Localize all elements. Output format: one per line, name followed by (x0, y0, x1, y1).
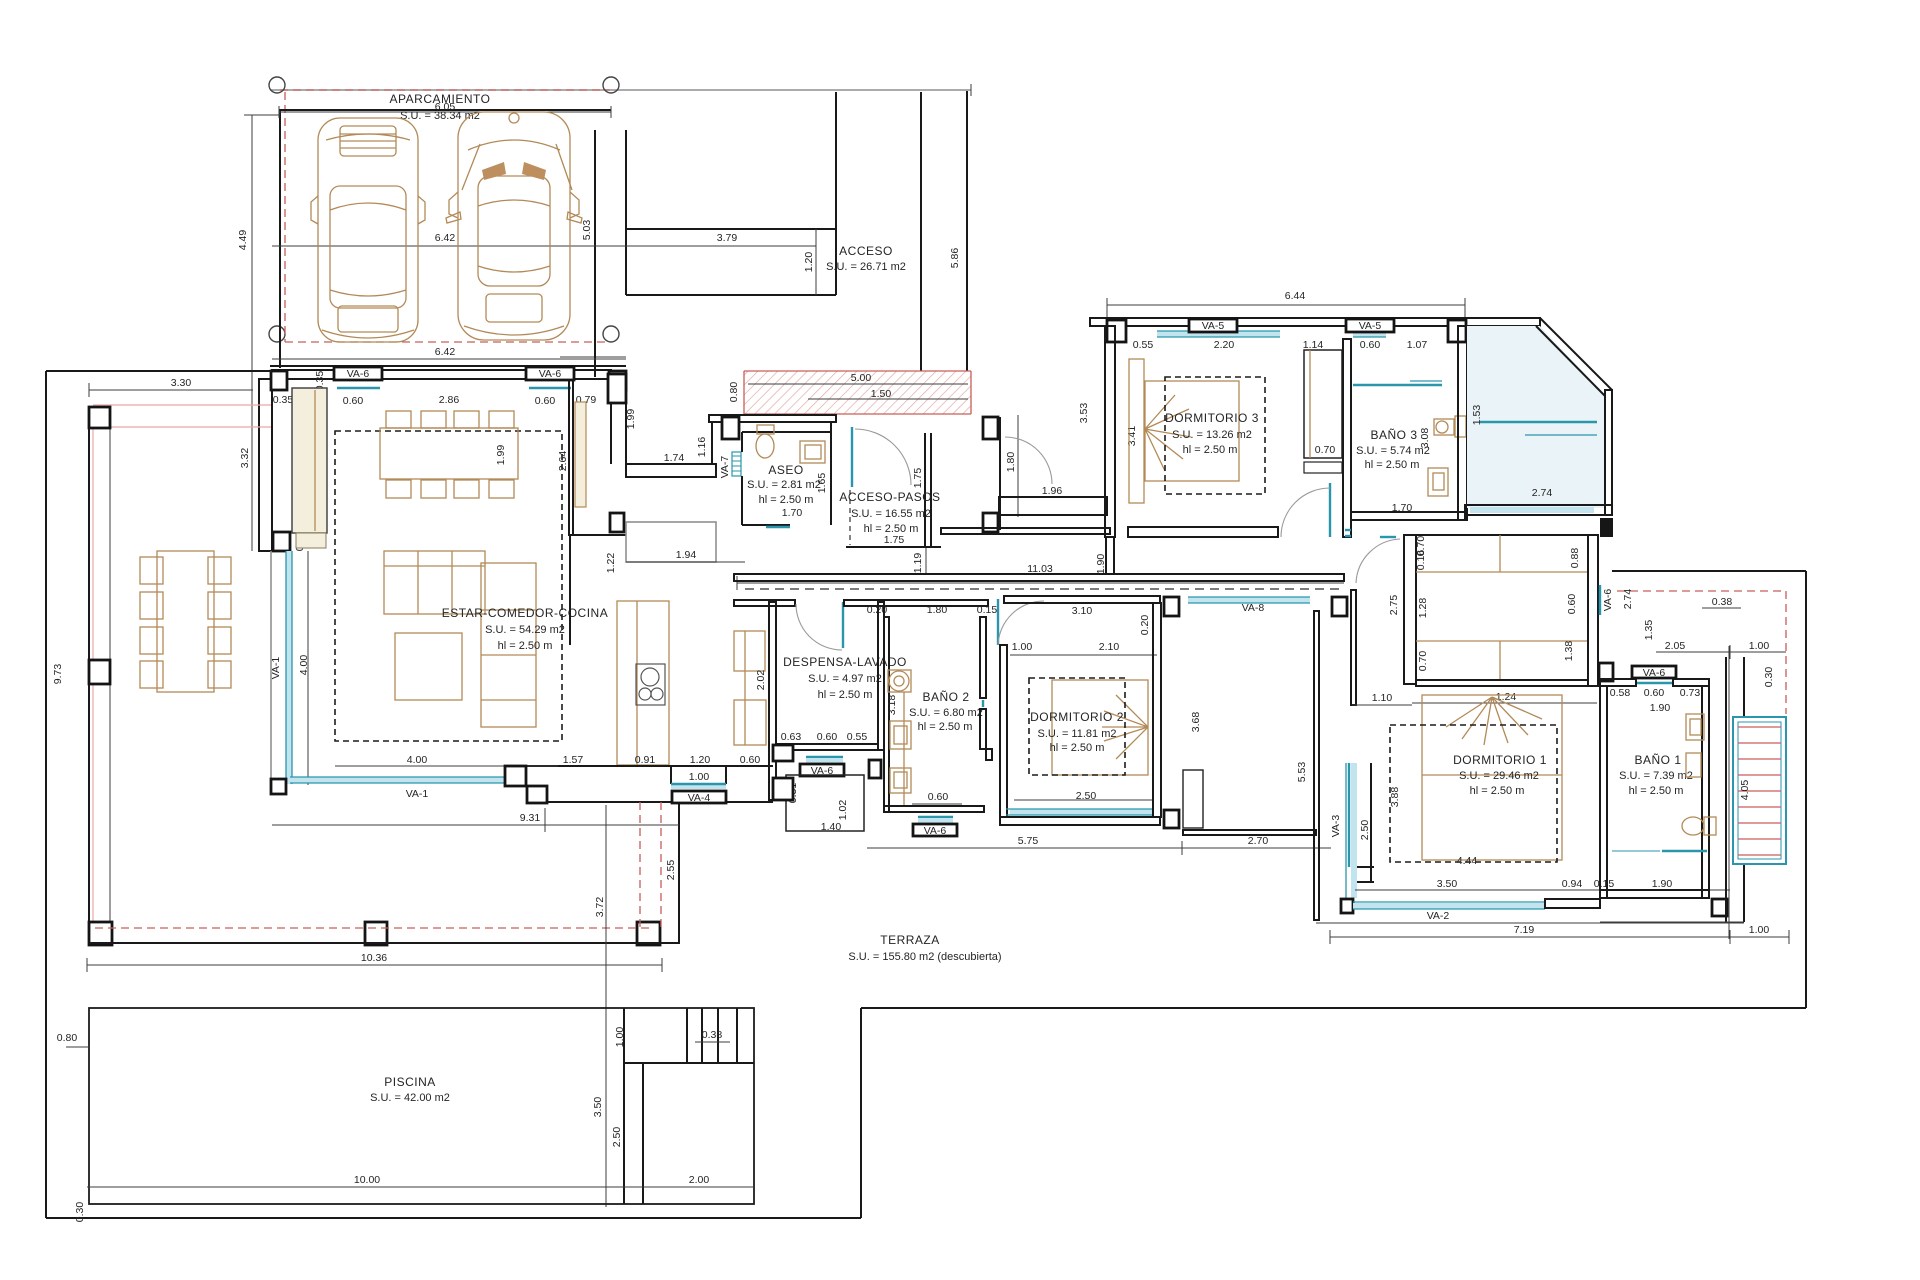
svg-text:hl = 2.50 m: hl = 2.50 m (759, 494, 814, 506)
svg-text:hl = 2.50 m: hl = 2.50 m (1629, 785, 1684, 797)
svg-text:4.00: 4.00 (407, 754, 428, 766)
svg-text:2.74: 2.74 (1622, 589, 1634, 610)
svg-text:1.65: 1.65 (816, 473, 828, 494)
svg-text:3.53: 3.53 (1078, 403, 1090, 424)
svg-text:VA-7: VA-7 (719, 456, 731, 479)
svg-text:5.53: 5.53 (1296, 762, 1308, 783)
svg-text:2.10: 2.10 (1099, 641, 1120, 653)
svg-text:1.90: 1.90 (1652, 878, 1673, 890)
svg-text:0.38: 0.38 (1712, 596, 1733, 608)
svg-text:0.94: 0.94 (1562, 878, 1583, 890)
svg-text:1.00: 1.00 (1749, 924, 1770, 936)
svg-text:1.22: 1.22 (605, 553, 617, 574)
svg-text:1.16: 1.16 (696, 437, 708, 458)
svg-text:1.28: 1.28 (1417, 598, 1429, 619)
svg-text:7.19: 7.19 (1514, 924, 1535, 936)
svg-text:S.U. = 155.80 m2 (descubierta): S.U. = 155.80 m2 (descubierta) (848, 951, 1001, 963)
svg-text:1.74: 1.74 (664, 452, 685, 464)
svg-text:1.75: 1.75 (912, 468, 924, 489)
svg-text:1.00: 1.00 (1012, 641, 1033, 653)
svg-text:VA-5: VA-5 (1359, 320, 1382, 332)
svg-text:VA-6: VA-6 (347, 368, 370, 380)
svg-text:1.14: 1.14 (1303, 339, 1324, 351)
svg-text:0.60: 0.60 (1360, 339, 1381, 351)
svg-text:1.00: 1.00 (1749, 640, 1770, 652)
svg-text:VA-6: VA-6 (539, 368, 562, 380)
svg-text:BAÑO 1: BAÑO 1 (1634, 753, 1681, 767)
svg-text:hl = 2.50 m: hl = 2.50 m (1470, 785, 1525, 797)
svg-text:10.00: 10.00 (354, 1174, 380, 1186)
svg-text:S.U. = 29.46 m2: S.U. = 29.46 m2 (1459, 770, 1539, 782)
svg-text:2.74: 2.74 (1532, 487, 1553, 499)
svg-text:1.07: 1.07 (1407, 339, 1428, 351)
svg-text:S.U. = 11.81 m2: S.U. = 11.81 m2 (1038, 728, 1117, 740)
svg-text:0.15: 0.15 (977, 604, 998, 616)
svg-text:1.53: 1.53 (1471, 405, 1483, 426)
svg-text:4.00: 4.00 (298, 655, 310, 676)
svg-text:ASEO: ASEO (768, 463, 803, 477)
svg-text:S.U. = 38.34 m2: S.U. = 38.34 m2 (400, 110, 480, 122)
svg-text:0.70: 0.70 (1417, 651, 1429, 672)
svg-text:1.50: 1.50 (871, 388, 892, 400)
svg-text:VA-3: VA-3 (1330, 815, 1342, 838)
svg-text:0.55: 0.55 (1133, 339, 1154, 351)
svg-text:2.55: 2.55 (665, 860, 677, 881)
svg-text:0.30: 0.30 (1763, 667, 1775, 688)
svg-text:0.63: 0.63 (781, 731, 802, 743)
svg-text:3.72: 3.72 (594, 897, 606, 918)
svg-text:VA-4: VA-4 (688, 792, 711, 804)
svg-text:DORMITORIO 1: DORMITORIO 1 (1453, 753, 1547, 767)
svg-text:ACCESO-PASOS: ACCESO-PASOS (839, 490, 940, 504)
svg-text:VA-1: VA-1 (270, 657, 282, 680)
svg-text:S.U. = 16.55 m2: S.U. = 16.55 m2 (851, 508, 931, 520)
svg-text:6.44: 6.44 (1285, 290, 1306, 302)
svg-text:0.20: 0.20 (1139, 615, 1151, 636)
svg-text:1.90: 1.90 (1650, 702, 1671, 714)
svg-text:2.02: 2.02 (755, 670, 767, 691)
svg-text:S.U. = 2.81 m2: S.U. = 2.81 m2 (747, 479, 821, 491)
svg-text:3.79: 3.79 (717, 232, 738, 244)
svg-text:1.38: 1.38 (1563, 641, 1575, 662)
svg-text:1.00: 1.00 (614, 1027, 626, 1048)
svg-text:ESTAR-COMEDOR-COCINA: ESTAR-COMEDOR-COCINA (442, 606, 608, 620)
svg-text:3.50: 3.50 (592, 1097, 604, 1118)
svg-text:0.58: 0.58 (1610, 687, 1631, 699)
svg-text:S.U. = 4.97 m2: S.U. = 4.97 m2 (808, 673, 882, 685)
svg-text:2.75: 2.75 (1388, 595, 1400, 616)
svg-text:4.44: 4.44 (1457, 855, 1478, 867)
svg-text:1.80: 1.80 (927, 604, 948, 616)
svg-text:VA-1: VA-1 (406, 788, 429, 800)
svg-text:0.80: 0.80 (728, 382, 740, 403)
svg-text:S.U. = 42.00 m2: S.U. = 42.00 m2 (370, 1092, 450, 1104)
svg-text:2.05: 2.05 (1665, 640, 1686, 652)
svg-text:5.00: 5.00 (851, 372, 872, 384)
svg-text:DORMITORIO 3: DORMITORIO 3 (1165, 411, 1259, 425)
svg-text:6.42: 6.42 (435, 346, 456, 358)
svg-text:1.02: 1.02 (837, 800, 849, 821)
svg-text:0.80: 0.80 (57, 1032, 78, 1044)
svg-text:5.03: 5.03 (581, 220, 593, 241)
svg-text:3.50: 3.50 (1437, 878, 1458, 890)
svg-text:2.00: 2.00 (689, 1174, 710, 1186)
svg-text:1.80: 1.80 (1005, 452, 1017, 473)
svg-text:1.40: 1.40 (821, 821, 842, 833)
svg-text:0.88: 0.88 (1569, 548, 1581, 569)
svg-text:2.50: 2.50 (1359, 820, 1371, 841)
svg-text:VA-6: VA-6 (1643, 667, 1666, 679)
svg-text:BAÑO 2: BAÑO 2 (922, 690, 969, 704)
svg-text:1.20: 1.20 (690, 754, 711, 766)
svg-text:S.U. = 54.29 m2: S.U. = 54.29 m2 (485, 624, 565, 636)
svg-text:0.60: 0.60 (1566, 594, 1578, 615)
svg-text:PISCINA: PISCINA (384, 1075, 436, 1089)
svg-text:VA-8: VA-8 (1242, 602, 1265, 614)
svg-text:hl = 2.50 m: hl = 2.50 m (918, 721, 973, 733)
svg-text:1.57: 1.57 (563, 754, 584, 766)
svg-text:DORMITORIO 2: DORMITORIO 2 (1030, 710, 1124, 724)
svg-text:TERRAZA: TERRAZA (880, 933, 940, 947)
svg-text:1.10: 1.10 (1372, 692, 1393, 704)
svg-text:0.60: 0.60 (817, 731, 838, 743)
svg-text:VA-6: VA-6 (1602, 589, 1614, 612)
svg-text:0.91: 0.91 (635, 754, 656, 766)
svg-text:2.50: 2.50 (611, 1127, 623, 1148)
svg-text:S.U. = 13.26 m2: S.U. = 13.26 m2 (1172, 429, 1252, 441)
svg-text:0.60: 0.60 (535, 395, 556, 407)
svg-text:2.70: 2.70 (1248, 835, 1269, 847)
svg-text:3.41: 3.41 (1126, 426, 1138, 447)
svg-text:S.U. = 6.80 m2: S.U. = 6.80 m2 (909, 707, 983, 719)
svg-text:3.68: 3.68 (1190, 712, 1202, 733)
svg-text:5.75: 5.75 (1018, 835, 1039, 847)
svg-text:6.42: 6.42 (435, 232, 456, 244)
svg-text:2.86: 2.86 (439, 394, 460, 406)
svg-text:S.U. = 7.39 m2: S.U. = 7.39 m2 (1619, 770, 1693, 782)
svg-text:3.30: 3.30 (171, 377, 192, 389)
svg-text:3.18: 3.18 (886, 695, 898, 716)
svg-text:hl = 2.50 m: hl = 2.50 m (1183, 444, 1238, 456)
svg-text:VA-5: VA-5 (1202, 320, 1225, 332)
svg-text:4.05: 4.05 (1739, 780, 1751, 801)
svg-text:0.60: 0.60 (343, 395, 364, 407)
svg-text:0.15: 0.15 (1594, 878, 1615, 890)
svg-text:0.30: 0.30 (74, 1202, 86, 1223)
svg-text:0.60: 0.60 (740, 754, 761, 766)
svg-text:2.64: 2.64 (557, 451, 569, 472)
svg-text:hl = 2.50 m: hl = 2.50 m (1365, 459, 1420, 471)
svg-text:0.55: 0.55 (847, 731, 868, 743)
svg-text:BAÑO 3: BAÑO 3 (1370, 428, 1417, 442)
svg-text:3.10: 3.10 (1072, 605, 1093, 617)
svg-text:0.70: 0.70 (1315, 444, 1336, 456)
svg-text:1.70: 1.70 (782, 507, 803, 519)
svg-text:9.31: 9.31 (520, 812, 541, 824)
svg-text:1.35: 1.35 (1643, 620, 1655, 641)
svg-text:1.20: 1.20 (803, 252, 815, 273)
svg-text:hl = 2.50 m: hl = 2.50 m (498, 640, 553, 652)
svg-text:hl = 2.50 m: hl = 2.50 m (818, 689, 873, 701)
svg-text:0.60: 0.60 (928, 791, 949, 803)
svg-text:1.96: 1.96 (1042, 485, 1063, 497)
svg-text:0.35: 0.35 (273, 394, 294, 406)
svg-text:1.19: 1.19 (912, 553, 924, 574)
svg-text:VA-6: VA-6 (924, 825, 947, 837)
svg-text:1.99: 1.99 (495, 445, 507, 466)
svg-text:0.38: 0.38 (702, 1029, 723, 1041)
svg-text:S.U. = 26.71 m2: S.U. = 26.71 m2 (826, 261, 906, 273)
svg-text:9.73: 9.73 (52, 664, 64, 685)
svg-text:3.08: 3.08 (1419, 428, 1431, 449)
svg-text:hl = 2.50 m: hl = 2.50 m (1050, 742, 1105, 754)
svg-text:1.94: 1.94 (676, 549, 697, 561)
svg-text:1.24: 1.24 (1496, 691, 1517, 703)
svg-text:ACCESO: ACCESO (839, 244, 893, 258)
svg-text:1.75: 1.75 (884, 534, 905, 546)
svg-text:3.32: 3.32 (239, 448, 251, 469)
svg-text:1.99: 1.99 (625, 409, 637, 430)
svg-text:5.86: 5.86 (949, 248, 961, 269)
svg-text:0.73: 0.73 (1680, 687, 1701, 699)
svg-text:3.88: 3.88 (1389, 787, 1401, 808)
svg-text:4.49: 4.49 (237, 230, 249, 251)
svg-text:2.20: 2.20 (1214, 339, 1235, 351)
svg-text:VA-2: VA-2 (1427, 910, 1450, 922)
svg-text:1.00: 1.00 (689, 771, 710, 783)
svg-text:0.60: 0.60 (1644, 687, 1665, 699)
svg-text:10.36: 10.36 (361, 952, 387, 964)
